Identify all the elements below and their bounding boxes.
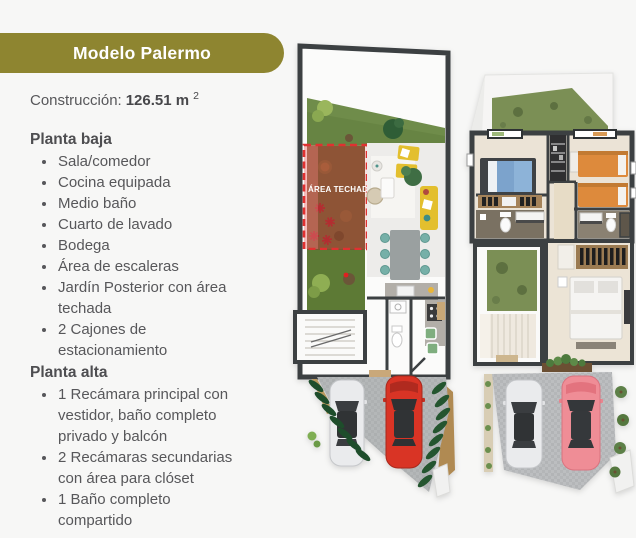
construction-line: Construcción:126.51 m2	[30, 86, 280, 111]
construction-superscript: 2	[193, 90, 199, 102]
side-lawn	[307, 250, 365, 312]
bedroom-principal	[546, 241, 632, 363]
white-car	[503, 380, 545, 468]
list-item: Bodega	[57, 235, 248, 256]
planta-baja-list: Sala/comedor Cocina equipada Medio baño …	[30, 151, 248, 361]
living-dining-area	[367, 143, 445, 280]
shower	[620, 213, 630, 237]
model-title: Modelo Palermo	[73, 43, 211, 64]
stairwell-block	[475, 245, 542, 364]
hall-wardrobe	[550, 135, 566, 181]
sink-icon	[425, 328, 436, 339]
pink-car	[559, 376, 603, 470]
model-title-badge: Modelo Palermo	[0, 33, 284, 73]
toilet-icon	[392, 333, 402, 347]
list-item: 1 Baño completo compartido	[57, 489, 248, 531]
list-item: 2 Recámaras secundarias con área para cl…	[57, 447, 248, 489]
brochure-page: { "header": { "title": "Modelo Palermo" …	[0, 0, 636, 538]
planta-baja-heading: Planta baja	[30, 129, 280, 150]
spec-panel: Construcción:126.51 m2 Planta baja Sala/…	[30, 86, 280, 531]
planta-alta-list: 1 Recámara principal con vestidor, baño …	[30, 384, 248, 531]
window-box	[631, 162, 636, 174]
list-item: Jardín Posterior con área techada	[57, 277, 248, 319]
planta-alta-heading: Planta alta	[30, 362, 280, 383]
construction-label: Construcción:	[30, 92, 122, 109]
list-item: 2 Cajones de estacionamiento	[57, 319, 248, 361]
list-item: 1 Recámara principal con vestidor, baño …	[57, 384, 248, 447]
window-box	[631, 188, 636, 198]
list-item: Sala/comedor	[57, 151, 248, 172]
bathroom-private	[578, 211, 630, 238]
dining-table	[390, 230, 420, 280]
red-car	[383, 376, 425, 468]
covered-area-overlay: ÁREA TECHADA	[304, 145, 374, 249]
list-item: Área de escaleras	[57, 256, 248, 277]
roof-garden-view	[470, 73, 613, 135]
planta-baja-floorplan: ÁREA TECHADA	[287, 40, 467, 502]
list-item: Medio baño	[57, 193, 248, 214]
sink-icon	[427, 343, 438, 354]
list-item: Cuarto de lavado	[57, 214, 248, 235]
toilet-icon	[606, 218, 615, 231]
stairs	[295, 312, 365, 362]
covered-area-label: ÁREA TECHADA	[308, 185, 374, 194]
washer-icon	[390, 301, 406, 313]
window-box	[467, 154, 473, 166]
planta-alta-floorplan	[458, 62, 636, 510]
bathroom-shared	[476, 210, 544, 238]
walk-in-closet	[576, 245, 628, 269]
toilet-icon	[501, 218, 511, 232]
construction-value: 126.51 m	[126, 92, 189, 109]
list-item: Cocina equipada	[57, 172, 248, 193]
